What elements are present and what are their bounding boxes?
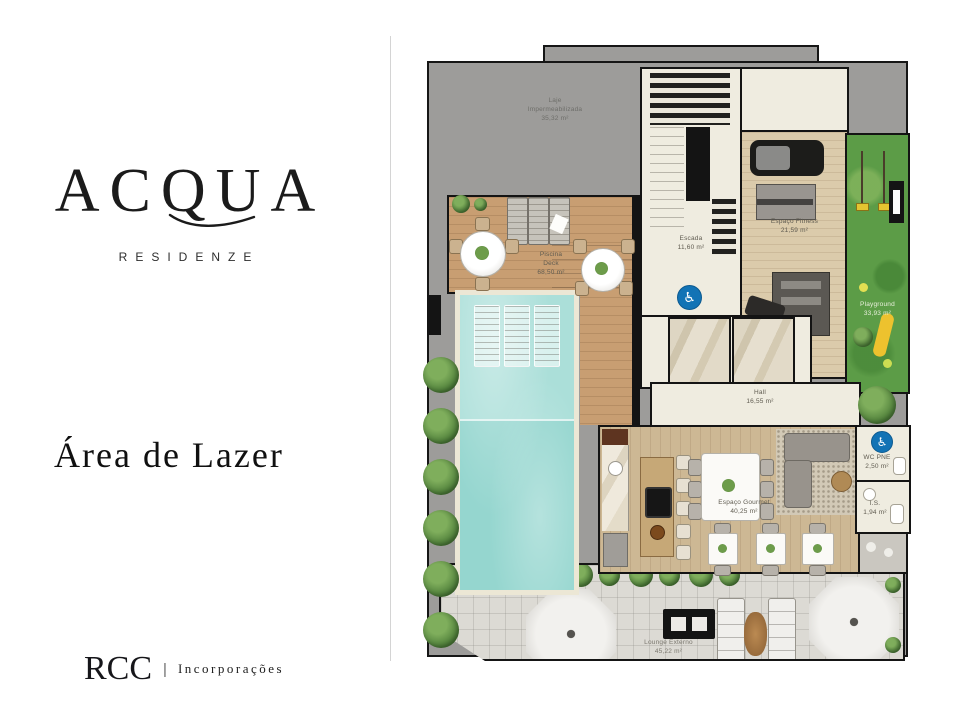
planter [423,357,459,393]
panel-divider [390,36,391,661]
gym-weight [781,297,821,305]
sofa [784,433,850,462]
patio-chair [475,217,490,231]
gourmet-room: Espaço Gourmet 40,25 m² [598,425,861,574]
table-centerpiece [722,479,735,492]
dining-chair [688,481,702,498]
room-label-gourmet: Espaço Gourmet 40,25 m² [684,499,804,517]
wall-niche-inset [893,190,900,214]
parasol-hub [567,630,575,638]
wall-deck-building [632,195,640,425]
towel [549,214,568,234]
swing-seat [856,203,869,211]
swing-rope [861,151,863,205]
gym-weight [781,281,821,289]
deck-plant [474,198,487,211]
table-centerpiece [718,544,727,553]
developer-name: RCC [84,650,152,688]
table-centerpiece [475,246,489,260]
deck-plant [452,195,470,213]
swing-rope [883,151,885,205]
pool-deck-side [580,288,632,425]
room-label-wc-pne: WC PNE 2,50 m² [857,454,897,472]
elevator-2 [732,317,795,385]
planter [423,459,459,495]
elevator-1 [668,317,731,385]
slide [872,312,895,358]
gym-machine-bar [757,199,813,205]
room-label-escada: Escada 11,60 m² [646,235,736,253]
room-label-playground: Playground 33,93 m² [847,301,908,319]
room-label-fitness: Espaço Fitness 21,59 m² [752,218,837,236]
room-label-deck: Piscina Deck 68,50 m² [517,251,585,277]
wall-pillar [427,295,441,335]
counter-item [866,542,876,552]
play-ball [859,283,868,292]
terrace-bush [885,577,901,593]
submerged-lounger [534,305,560,367]
kitchen-counter [602,445,629,531]
wall-niche [889,181,904,223]
room-label-is: I.S. 1,94 m² [857,500,893,518]
patio-chair [619,281,633,296]
submerged-lounger [504,305,530,367]
planter [423,612,459,648]
room-label-lounge: Lounge Externo 45,22 m² [606,639,731,657]
playground-bush [853,327,873,347]
service-counter [858,532,908,574]
dining-chair [688,459,702,476]
bistro-chair [714,565,731,576]
developer-tagline: Incorporações [178,661,284,677]
patio-chair [621,239,635,254]
treadmill [750,140,824,176]
developer-logo: RCC | Incorporações [84,650,284,688]
dining-chair [760,481,774,498]
outdoor-rug [744,612,767,656]
bar-stool [676,524,691,539]
terrace-bush [885,637,901,653]
fire-table-inset [671,617,686,631]
brand-logo-subtitle: RESIDENZE [15,250,355,264]
stair-treads [650,73,730,125]
accessibility-icon: ♿ [871,431,893,453]
gym-machine [756,184,816,220]
planter [423,408,459,444]
playground: Playground 33,93 m² [845,133,910,394]
treadmill-belt [756,146,790,170]
swimming-pool [455,290,579,595]
logo-q-swash-icon [168,213,256,231]
developer-separator: | [163,661,167,678]
stairwell: Escada 11,60 m² [640,67,744,319]
page-title: Área de Lazer [54,434,284,476]
sun-lounger [507,197,528,245]
play-ball [883,359,892,368]
room-label-hall: Hall 16,55 m² [720,389,800,407]
coffee-table [831,471,852,492]
sun-lounger [528,197,549,245]
planter [423,561,459,597]
cooktop [645,487,672,518]
patio-chair [475,277,490,291]
accessibility-icon: ♿ [677,285,702,310]
stair-treads [650,127,684,227]
table-centerpiece [766,544,775,553]
upper-room [740,67,849,135]
dining-chair [760,459,774,476]
kettle [650,525,665,540]
sideboard-cabinet [602,429,628,445]
fire-table-inset [692,617,707,631]
table-centerpiece [595,262,608,275]
bistro-chair [762,565,779,576]
counter-item [884,548,893,557]
bistro-chair [809,565,826,576]
page: ACQUA RESIDENZE Área de Lazer RCC | Inco… [0,0,965,724]
kitchen-appliance [603,533,628,567]
submerged-lounger [474,305,500,367]
outdoor-sofa [768,598,796,661]
table-centerpiece [813,544,822,553]
floor-plan: Laje Impermeabilizada 35,32 m² [425,45,910,660]
is-room: I.S. 1,94 m² [855,480,911,534]
kitchen-sink [608,461,623,476]
parasol-hub [850,618,858,626]
fire-table [663,609,715,639]
bar-stool [676,545,691,560]
stair-core [686,127,710,201]
planter [423,510,459,546]
deck-step [552,245,632,246]
sun-lounger [549,197,570,245]
pool-lane-line [460,419,574,421]
room-label-laje: Laje Impermeabilizada 35,32 m² [485,97,625,123]
tree [858,386,896,424]
wc-pne: ♿ WC PNE 2,50 m² [855,425,911,484]
parasol-left [526,589,616,661]
